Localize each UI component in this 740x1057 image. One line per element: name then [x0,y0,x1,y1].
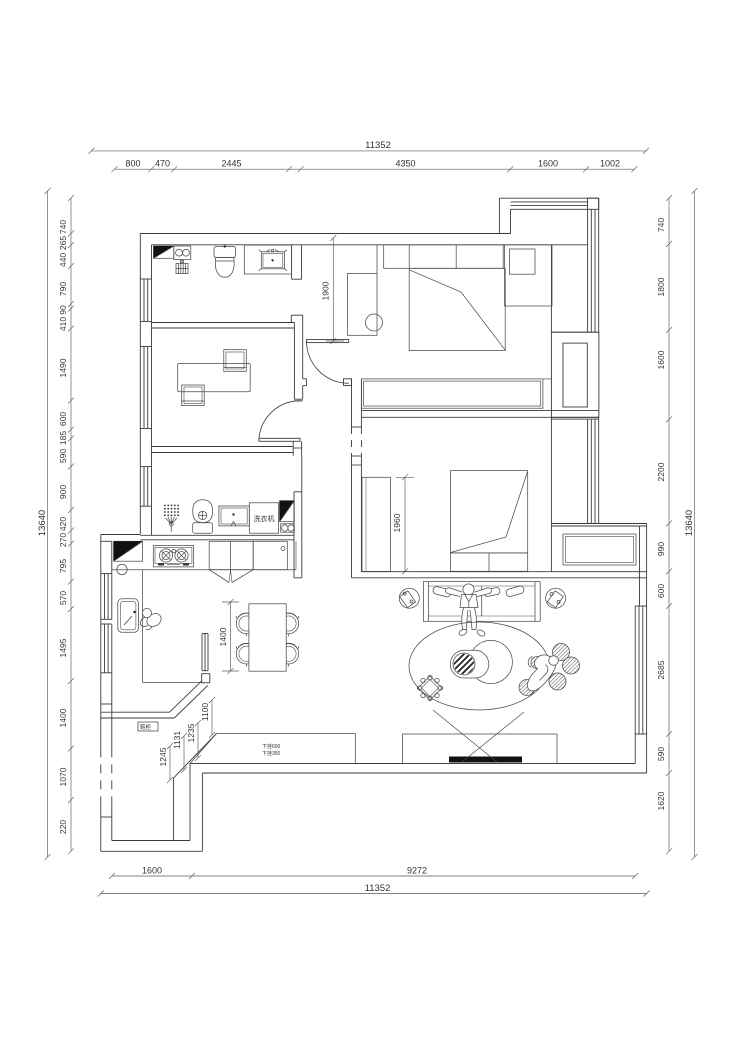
svg-text:740: 740 [656,218,666,232]
svg-text:13640: 13640 [37,510,48,536]
svg-text:90: 90 [58,305,68,315]
svg-text:1235: 1235 [186,723,196,742]
svg-text:420: 420 [58,517,68,531]
svg-text:1070: 1070 [58,767,68,786]
svg-text:2445: 2445 [221,159,241,169]
svg-text:1495: 1495 [58,638,68,657]
svg-text:990: 990 [656,542,666,556]
svg-text:1002: 1002 [600,159,620,169]
svg-text:795: 795 [58,559,68,573]
svg-text:4350: 4350 [395,159,415,169]
svg-text:440: 440 [58,253,68,267]
svg-text:11352: 11352 [365,140,391,151]
svg-text:下挂600: 下挂600 [262,743,281,750]
svg-text:410: 410 [58,317,68,331]
svg-text:下挂350: 下挂350 [262,750,281,757]
svg-text:800: 800 [125,159,140,169]
svg-text:185: 185 [58,431,68,445]
svg-text:590: 590 [656,747,666,761]
svg-text:590: 590 [58,449,68,463]
svg-text:470: 470 [155,159,170,169]
svg-text:790: 790 [58,282,68,296]
svg-text:1400: 1400 [58,708,68,727]
svg-text:1620: 1620 [656,791,666,810]
svg-text:1490: 1490 [58,358,68,377]
svg-text:9272: 9272 [407,866,427,876]
svg-text:1131: 1131 [172,731,182,750]
svg-text:270: 270 [58,533,68,547]
svg-text:1100: 1100 [200,703,210,722]
svg-text:2685: 2685 [656,660,666,679]
svg-text:1600: 1600 [538,159,558,169]
svg-text:570: 570 [58,591,68,605]
svg-text:2200: 2200 [656,462,666,481]
svg-text:1600: 1600 [142,866,162,876]
svg-text:1400: 1400 [218,627,228,646]
svg-text:740: 740 [58,220,68,234]
svg-text:1960: 1960 [392,513,402,532]
svg-text:1900: 1900 [321,281,331,300]
svg-text:鞋柜: 鞋柜 [140,723,152,731]
svg-text:900: 900 [58,485,68,499]
svg-text:1245: 1245 [158,747,168,766]
svg-text:600: 600 [656,584,666,598]
svg-text:265: 265 [58,236,68,250]
svg-text:1600: 1600 [656,350,666,369]
svg-text:11352: 11352 [365,883,391,894]
svg-text:220: 220 [58,820,68,834]
svg-text:600: 600 [58,412,68,426]
svg-text:1800: 1800 [656,277,666,296]
svg-text:13640: 13640 [684,510,695,536]
svg-text:洗衣机: 洗衣机 [254,514,275,523]
